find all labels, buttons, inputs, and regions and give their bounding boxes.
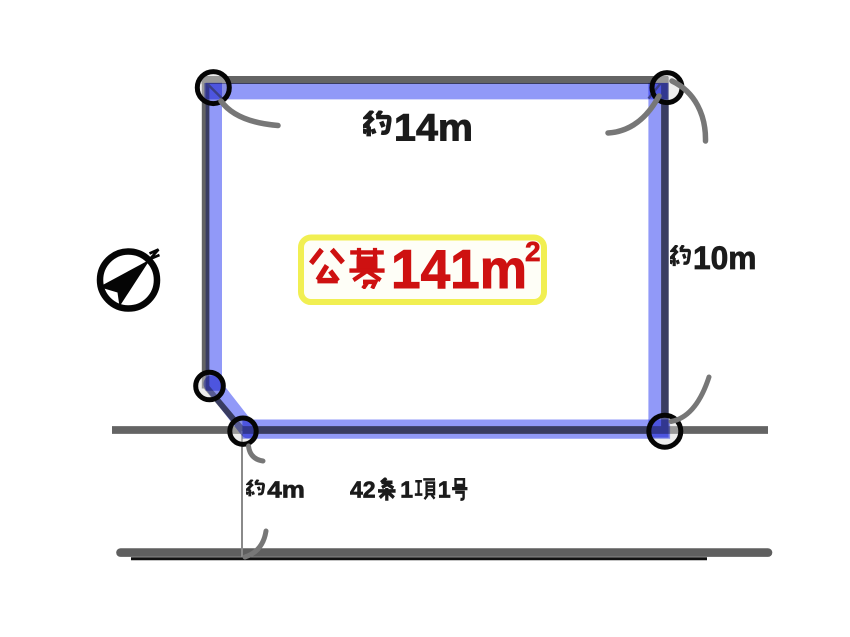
svg-text:1: 1 xyxy=(400,477,413,503)
svg-text:141m: 141m xyxy=(391,238,527,300)
svg-text:4m: 4m xyxy=(267,477,305,503)
svg-text:1: 1 xyxy=(438,477,451,503)
svg-text:2: 2 xyxy=(525,236,541,267)
svg-text:42: 42 xyxy=(350,477,376,503)
svg-text:10m: 10m xyxy=(693,240,757,276)
svg-text:14m: 14m xyxy=(394,108,473,150)
